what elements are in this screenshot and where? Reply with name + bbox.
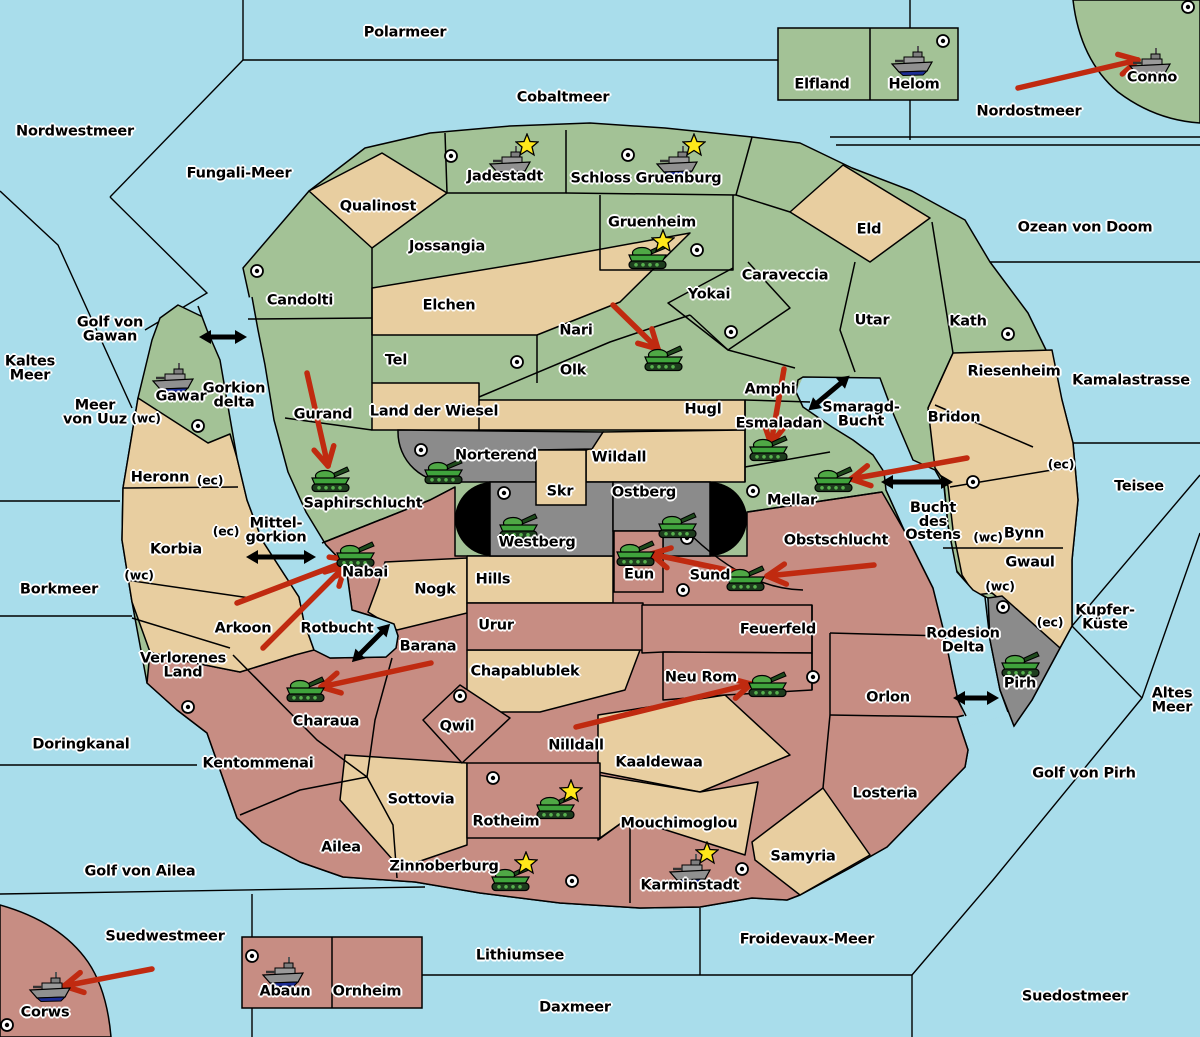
city-icon: [445, 150, 457, 162]
attack-arrow: [64, 969, 152, 992]
city-icon: [691, 244, 703, 256]
city-icon: [677, 584, 689, 596]
city-icon: [622, 149, 634, 161]
city-icon: [1, 1019, 13, 1031]
city-icon: [967, 476, 979, 488]
city-icon: [807, 671, 819, 683]
city-icon: [747, 485, 759, 497]
city-icon: [182, 701, 194, 713]
city-icon: [511, 356, 523, 368]
map-canvas: [0, 0, 1200, 1037]
city-icon: [246, 950, 258, 962]
city-icon: [251, 265, 263, 277]
map-regions: [0, 0, 1200, 1037]
city-icon: [937, 35, 949, 47]
city-icon: [736, 863, 748, 875]
city-icon: [415, 444, 427, 456]
city-icon: [1002, 328, 1014, 340]
city-icon: [1182, 1, 1194, 13]
city-icon: [997, 601, 1009, 613]
city-icon: [192, 420, 204, 432]
city-icon: [498, 487, 510, 499]
city-icon: [454, 690, 466, 702]
city-icon: [566, 875, 578, 887]
city-icon: [487, 772, 499, 784]
game-map[interactable]: PolarmeerCobaltmeerNordwestmeerFungali-M…: [0, 0, 1200, 1037]
city-icon: [725, 326, 737, 338]
